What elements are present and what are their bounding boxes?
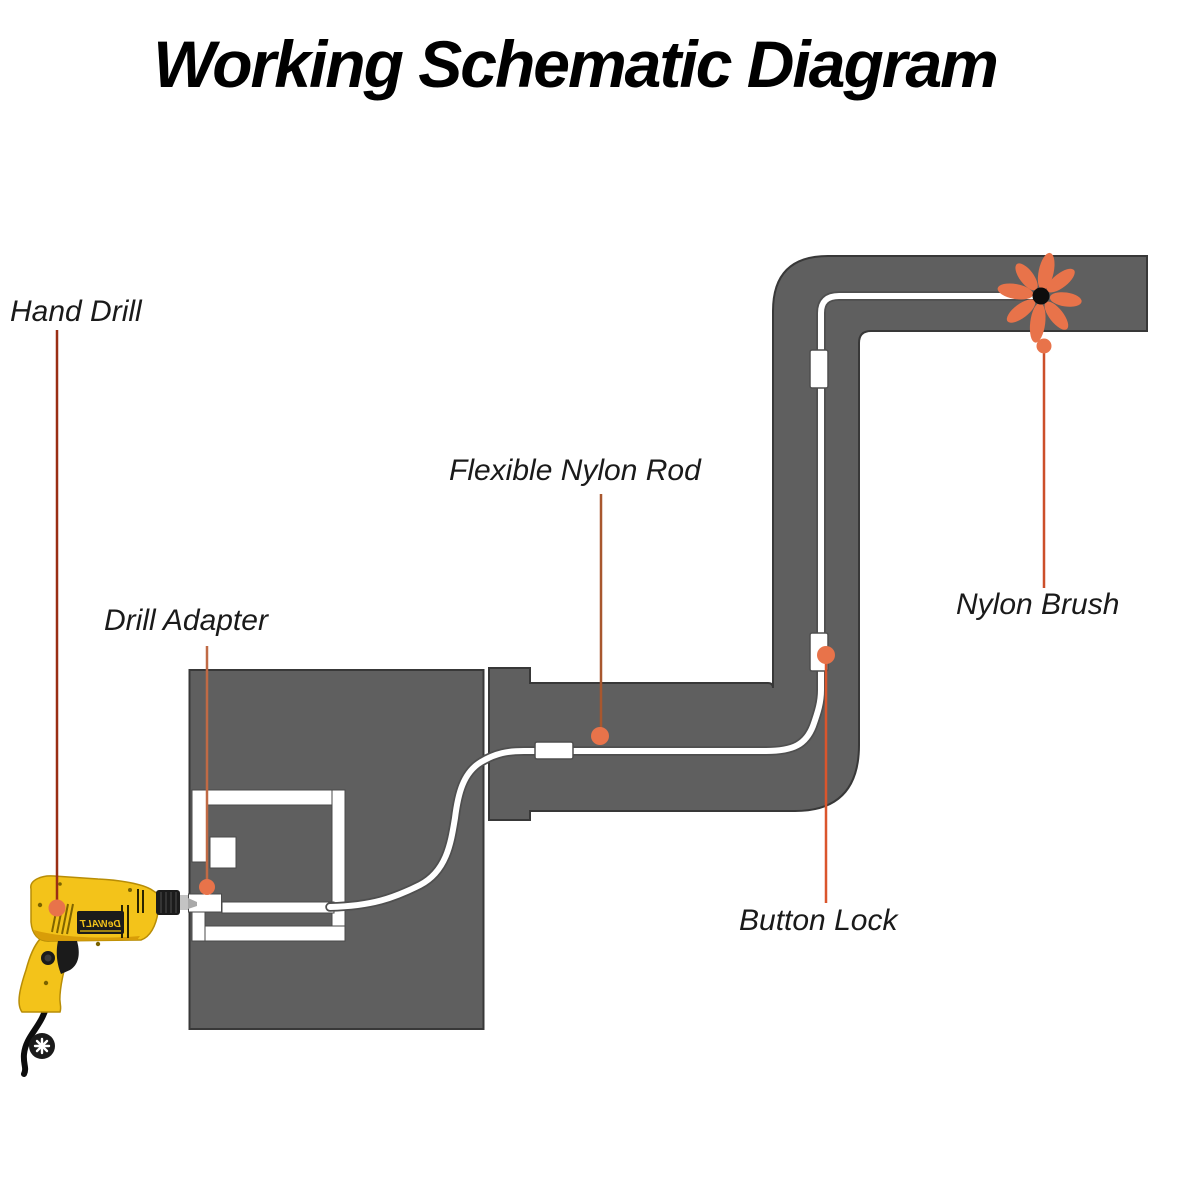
- chuck-collar: [180, 895, 188, 910]
- label-flexible-nylon-rod: Flexible Nylon Rod: [449, 455, 701, 487]
- cord-reel-star-icon: [35, 1039, 49, 1053]
- label-hand-drill: Hand Drill: [10, 296, 142, 328]
- hand-drill-dot: [49, 900, 66, 917]
- flexible-rod-dot: [591, 727, 609, 745]
- label-drill-adapter: Drill Adapter: [104, 605, 268, 637]
- button-lock-dot: [817, 646, 835, 664]
- brush-hub: [1033, 288, 1050, 305]
- hand-drill-graphic: DeWALT: [19, 876, 197, 1074]
- brand-text: DeWALT: [79, 919, 120, 930]
- label-button-lock: Button Lock: [739, 905, 897, 937]
- label-nylon-brush: Nylon Brush: [956, 589, 1119, 621]
- nylon-brush-dot: [1037, 339, 1052, 354]
- diagram-page: Working Schematic Diagram: [0, 0, 1200, 1200]
- drill-adapter-dot: [199, 879, 215, 895]
- drill-trigger: [57, 941, 79, 974]
- button-lock-connector: [810, 350, 828, 388]
- button-lock-connector: [535, 742, 573, 759]
